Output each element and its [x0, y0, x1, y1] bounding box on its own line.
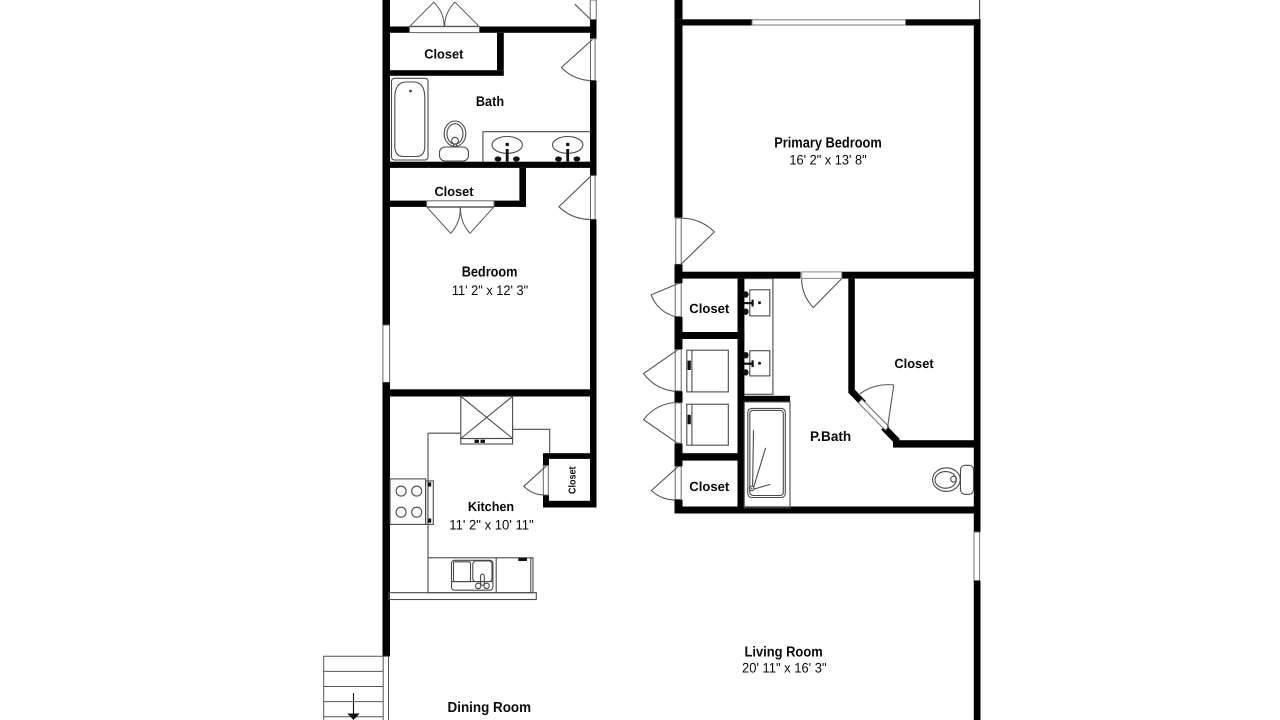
svg-text:Bath: Bath	[476, 93, 504, 109]
svg-text:Closet: Closet	[434, 184, 474, 199]
svg-text:Bedroom: Bedroom	[462, 265, 518, 281]
svg-text:11' 2" x 10' 11": 11' 2" x 10' 11"	[449, 517, 534, 532]
svg-text:11' 2" x 12' 3": 11' 2" x 12' 3"	[452, 283, 528, 298]
svg-text:Closet: Closet	[424, 47, 464, 62]
svg-text:Closet: Closet	[568, 466, 579, 494]
svg-text:Dining Room: Dining Room	[448, 700, 532, 716]
svg-text:Closet: Closet	[689, 301, 730, 316]
svg-text:P.Bath: P.Bath	[810, 428, 851, 444]
svg-text:Living Room: Living Room	[745, 644, 823, 660]
svg-text:Closet: Closet	[894, 356, 934, 371]
svg-text:Closet: Closet	[689, 479, 730, 494]
svg-text:16' 2" x 13' 8": 16' 2" x 13' 8"	[789, 153, 866, 168]
svg-text:Kitchen: Kitchen	[468, 499, 514, 514]
svg-text:Primary Bedroom: Primary Bedroom	[774, 135, 882, 151]
svg-text:20' 11" x 16' 3": 20' 11" x 16' 3"	[742, 661, 827, 676]
